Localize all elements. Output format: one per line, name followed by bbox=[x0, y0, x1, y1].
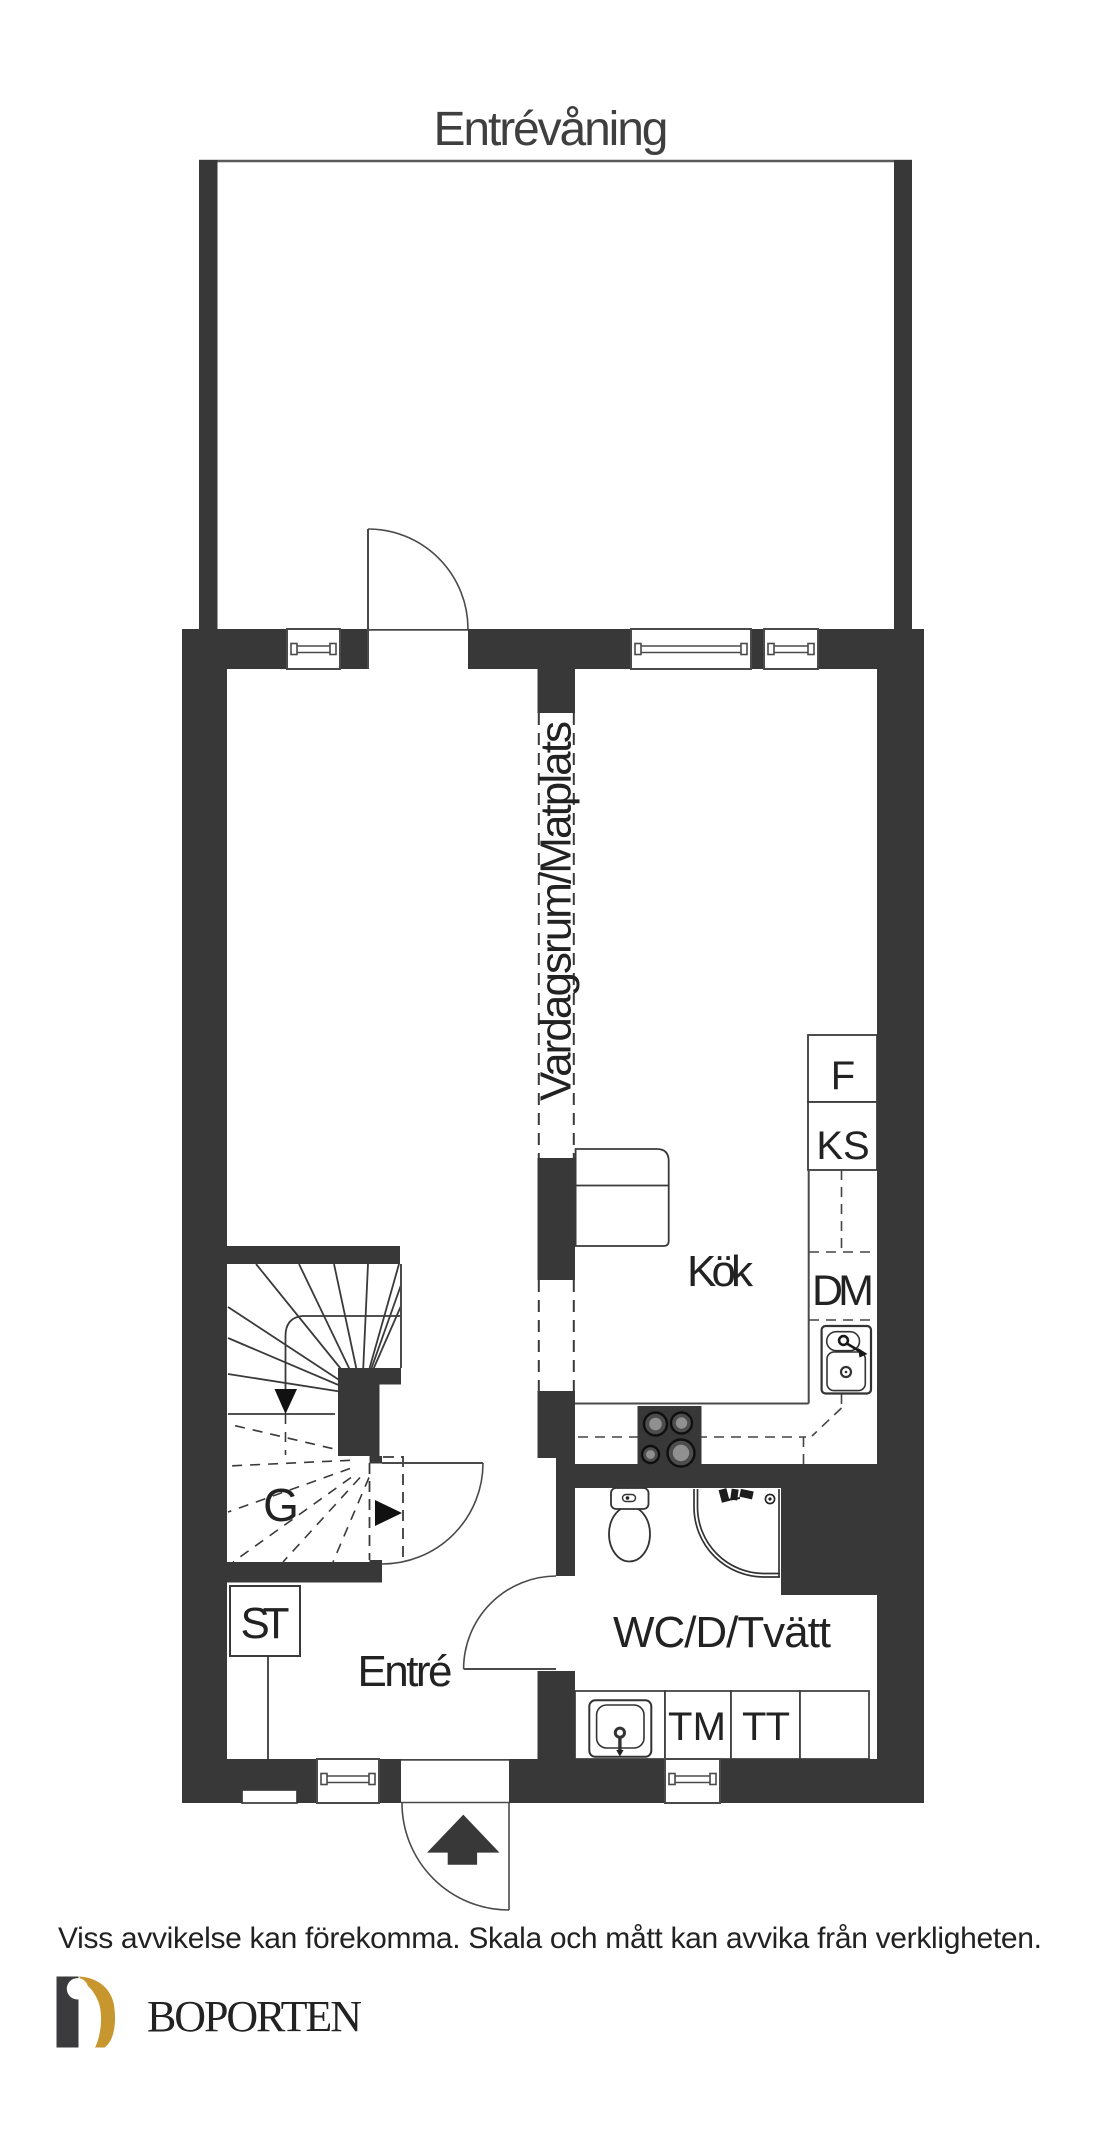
svg-text:Vardagsrum/Matplats: Vardagsrum/Matplats bbox=[532, 721, 581, 1101]
svg-text:WC/D/Tvätt: WC/D/Tvätt bbox=[613, 1608, 831, 1657]
svg-text:DM: DM bbox=[812, 1267, 874, 1315]
svg-text:KS: KS bbox=[816, 1124, 869, 1168]
svg-text:BOPORTEN: BOPORTEN bbox=[147, 1992, 362, 2041]
svg-text:TT: TT bbox=[742, 1705, 790, 1749]
svg-text:G: G bbox=[263, 1479, 299, 1531]
svg-text:Viss avvikelse kan förekomma.: Viss avvikelse kan förekomma. Skala och … bbox=[58, 1922, 1042, 1955]
svg-text:Kök: Kök bbox=[687, 1247, 754, 1296]
svg-text:Entré: Entré bbox=[358, 1647, 453, 1696]
svg-text:Entrévåning: Entrévåning bbox=[434, 103, 669, 156]
svg-text:F: F bbox=[831, 1054, 855, 1098]
svg-text:TM: TM bbox=[668, 1705, 726, 1749]
svg-text:ST: ST bbox=[241, 1599, 290, 1648]
